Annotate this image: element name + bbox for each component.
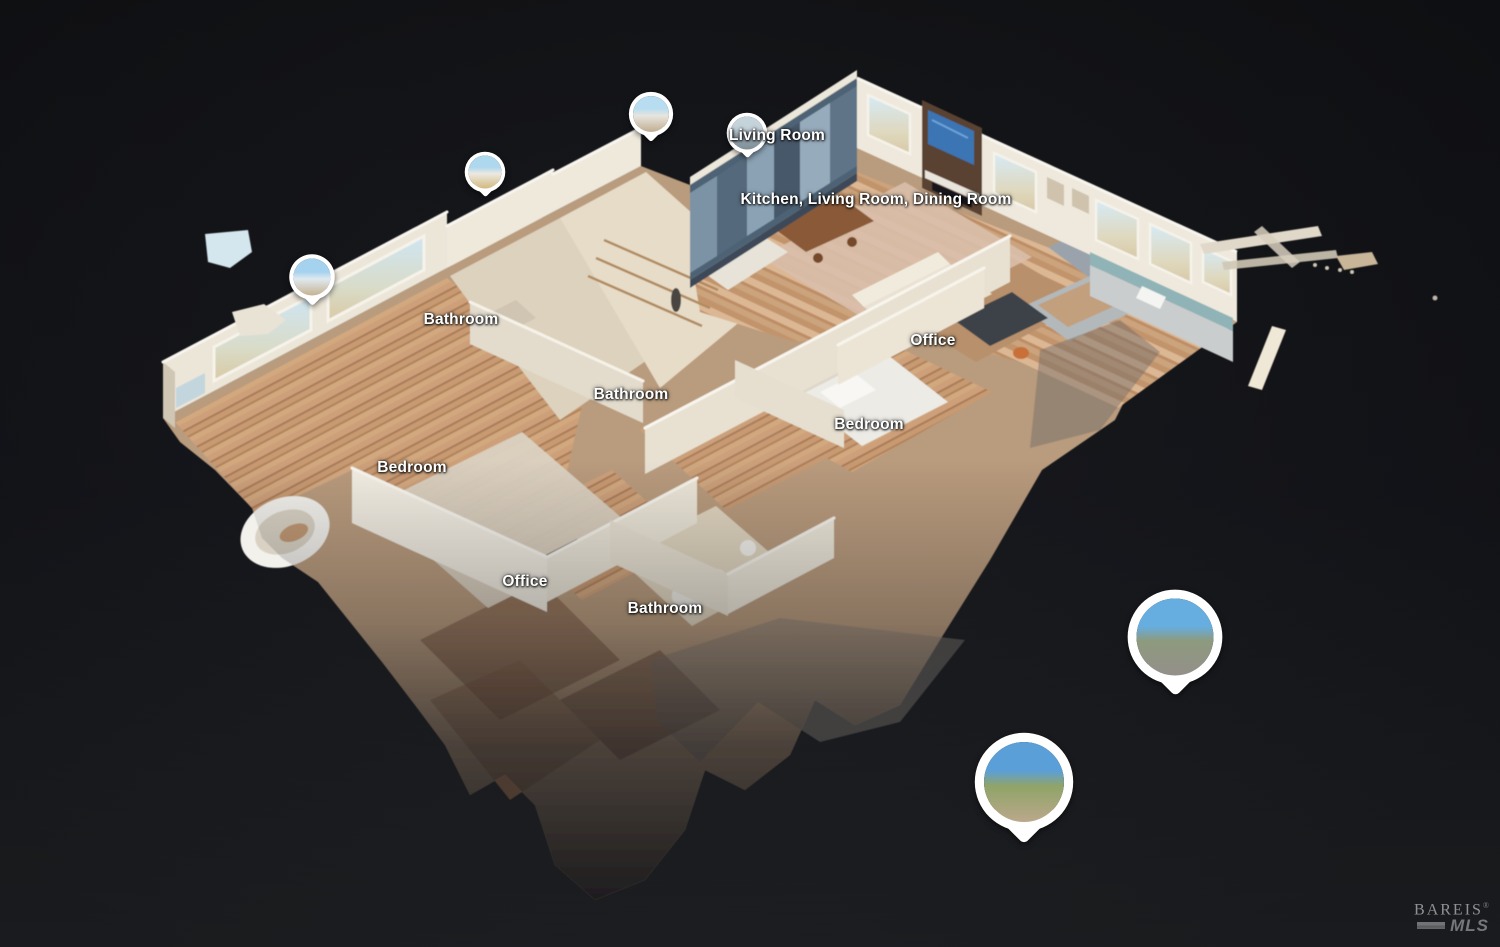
pin-photo-thumbnail [469, 156, 502, 189]
room-label: Bathroom [424, 311, 499, 329]
room-label-text: Bathroom [424, 311, 499, 328]
room-label-text: Office [502, 573, 547, 590]
room-label-text: Kitchen, Living Room, Dining Room [741, 191, 1012, 208]
room-label: Bathroom [594, 386, 669, 404]
bareis-mls-watermark: BAREIS® MLS [1414, 901, 1489, 934]
room-label-text: Bathroom [594, 386, 669, 403]
watermark-mls: MLS [1450, 917, 1489, 934]
photo-pin[interactable] [469, 156, 502, 189]
room-label: Bedroom [834, 416, 903, 434]
room-label: Office [502, 573, 547, 591]
room-label: Kitchen, Living Room, Dining Room [741, 191, 1012, 209]
room-label-text: Bedroom [834, 416, 903, 433]
room-label: Bathroom [628, 600, 703, 618]
room-label-text: Living Room [729, 127, 825, 144]
registered-mark: ® [1483, 901, 1489, 910]
pin-photo-thumbnail [984, 742, 1064, 822]
room-label: Bedroom [377, 459, 446, 477]
pin-photo-thumbnail [1137, 599, 1214, 676]
room-label: Office [910, 332, 955, 350]
photo-pin[interactable] [294, 259, 331, 296]
room-label-text: Bathroom [628, 600, 703, 617]
pin-photo-thumbnail [294, 259, 331, 296]
photo-pin[interactable] [633, 96, 669, 132]
mls-bar-icon [1417, 922, 1445, 929]
room-label: Living Room [729, 127, 825, 145]
virtual-tour-viewport: Living Room Kitchen, Living Room, Dining… [0, 0, 1500, 947]
shadow-fade [163, 78, 1237, 900]
pin-photo-thumbnail [633, 96, 669, 132]
watermark-mls-row: MLS [1414, 917, 1489, 934]
photo-pin[interactable] [984, 742, 1064, 822]
photo-pin[interactable] [1137, 599, 1214, 676]
room-label-text: Office [910, 332, 955, 349]
room-label-text: Bedroom [377, 459, 446, 476]
